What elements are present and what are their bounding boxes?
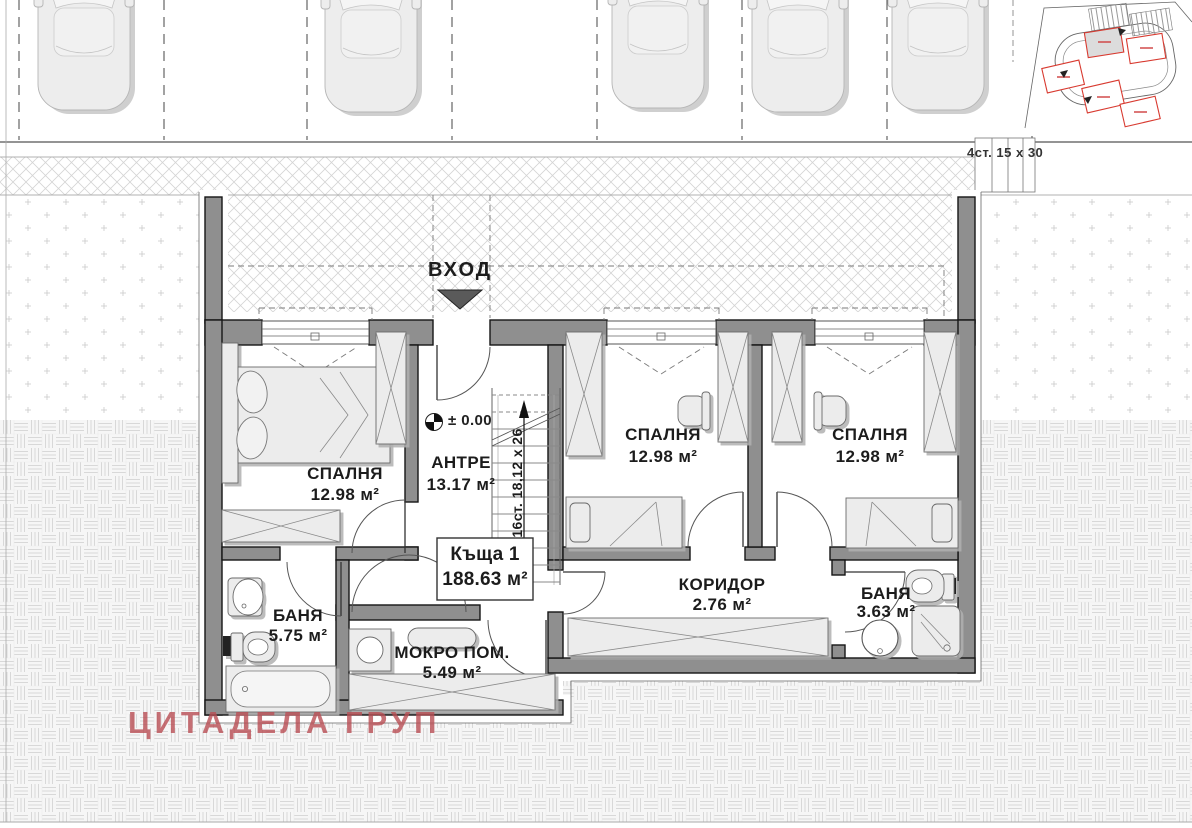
room-label-bathroom-right-name: БАНЯ	[861, 584, 911, 604]
wardrobe	[566, 332, 602, 456]
floor-plan-page: ВХОД СПАЛНЯ 12.98 м² АНТРЕ 13.17 м² СПАЛ…	[0, 0, 1192, 828]
toilet	[223, 632, 275, 662]
sink	[228, 578, 263, 616]
floor-plan-drawing	[0, 0, 1192, 828]
house-tag-area: 188.63 м²	[442, 569, 528, 591]
paving-right	[975, 420, 1192, 822]
house-tag-name: Къща 1	[450, 544, 519, 566]
room-label-bedroom-left-area: 12.98 м²	[311, 485, 380, 505]
room-label-bathroom-right-area: 3.63 м²	[857, 602, 916, 622]
entrance-label: ВХОД	[428, 259, 492, 282]
wardrobe	[376, 332, 406, 444]
wardrobe	[772, 332, 802, 442]
parking-area	[19, 0, 1032, 140]
sidewalk-hatch	[0, 157, 975, 195]
paving-left	[0, 420, 205, 822]
room-label-bedroom-right-name: СПАЛНЯ	[832, 425, 908, 445]
washing-machine	[349, 629, 391, 671]
room-label-hall-area: 13.17 м²	[427, 475, 496, 495]
garden-left	[4, 195, 205, 423]
room-label-bedroom-right-area: 12.98 м²	[836, 447, 905, 467]
company-watermark: ЦИТАДЕЛА ГРУП	[128, 705, 440, 741]
wardrobe	[924, 332, 956, 452]
cabinet	[568, 618, 828, 656]
room-label-bathroom-left-name: БАНЯ	[273, 606, 323, 626]
single-bed	[846, 498, 958, 548]
parking-dividers	[19, 0, 1032, 140]
level-mark-label: ± 0.00	[448, 412, 492, 429]
room-label-wet-room-name: МОКРО ПОМ.	[394, 643, 509, 663]
room-label-bedroom-middle-area: 12.98 м²	[629, 447, 698, 467]
room-label-bathroom-left-area: 5.75 м²	[269, 626, 328, 646]
site-plan-inset	[1013, 0, 1192, 132]
dresser	[222, 510, 340, 542]
room-label-bedroom-left-name: СПАЛНЯ	[307, 464, 383, 484]
garden-right	[975, 195, 1192, 423]
stair-note-label: 16ст. 18,12 x 26	[509, 428, 525, 537]
single-bed	[566, 497, 682, 548]
room-label-corridor-name: КОРИДОР	[679, 575, 766, 595]
forecourt-hatch	[222, 195, 958, 320]
room-label-bedroom-middle-name: СПАЛНЯ	[625, 425, 701, 445]
shower	[912, 606, 960, 656]
wardrobe	[718, 332, 748, 442]
outdoor-steps-label: 4ст. 15 x 30	[967, 145, 1043, 160]
room-label-corridor-area: 2.76 м²	[693, 595, 752, 615]
level-marker	[426, 414, 443, 431]
toilet	[906, 570, 956, 602]
paving-bottom-right	[563, 673, 975, 822]
sink	[862, 620, 898, 656]
room-label-wet-room-area: 5.49 м²	[423, 663, 482, 683]
room-label-hall-name: АНТРЕ	[431, 453, 491, 473]
